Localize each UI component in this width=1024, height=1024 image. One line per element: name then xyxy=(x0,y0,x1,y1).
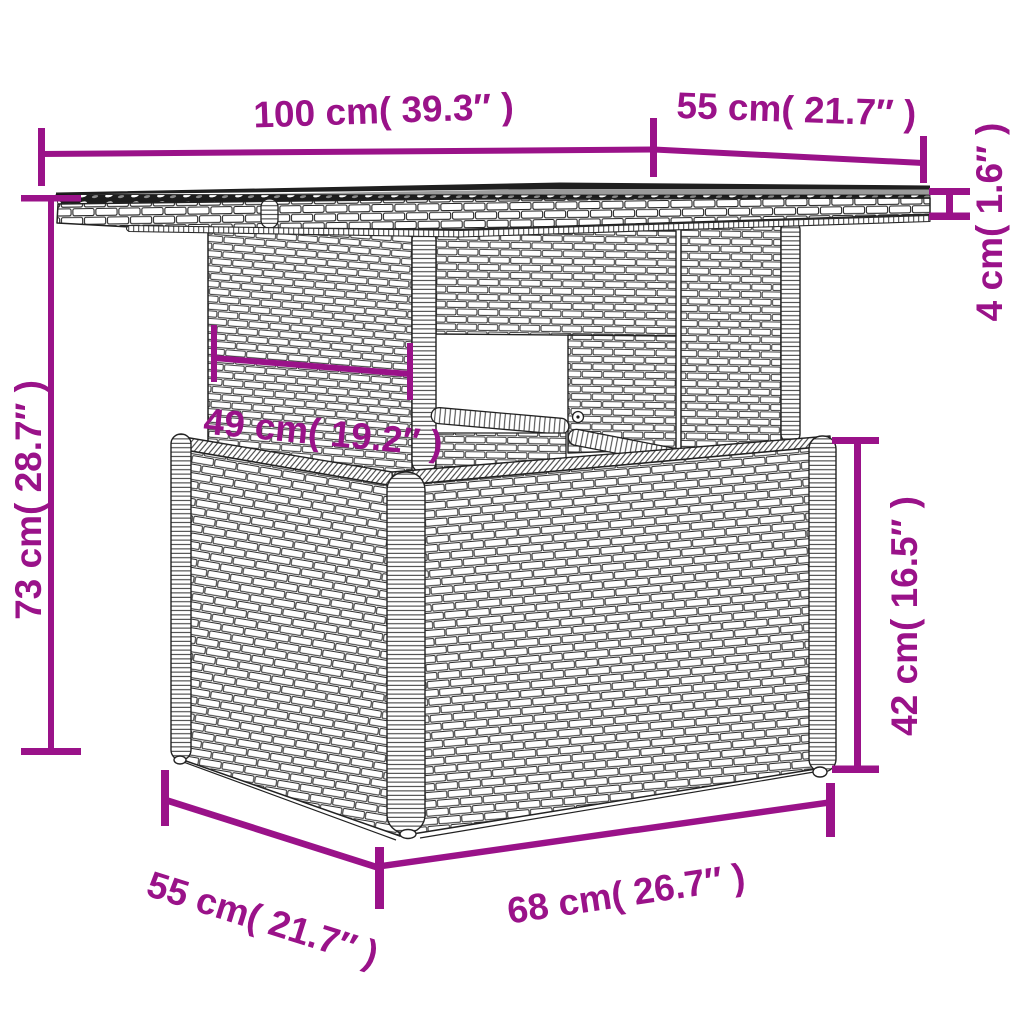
svg-text:73 cm( 28.7″ ): 73 cm( 28.7″ ) xyxy=(8,380,49,620)
svg-text:4 cm( 1.6″ ): 4 cm( 1.6″ ) xyxy=(969,123,1010,322)
svg-text:55 cm( 21.7″ ): 55 cm( 21.7″ ) xyxy=(676,85,917,134)
svg-text:42 cm( 16.5″ ): 42 cm( 16.5″ ) xyxy=(884,496,925,736)
